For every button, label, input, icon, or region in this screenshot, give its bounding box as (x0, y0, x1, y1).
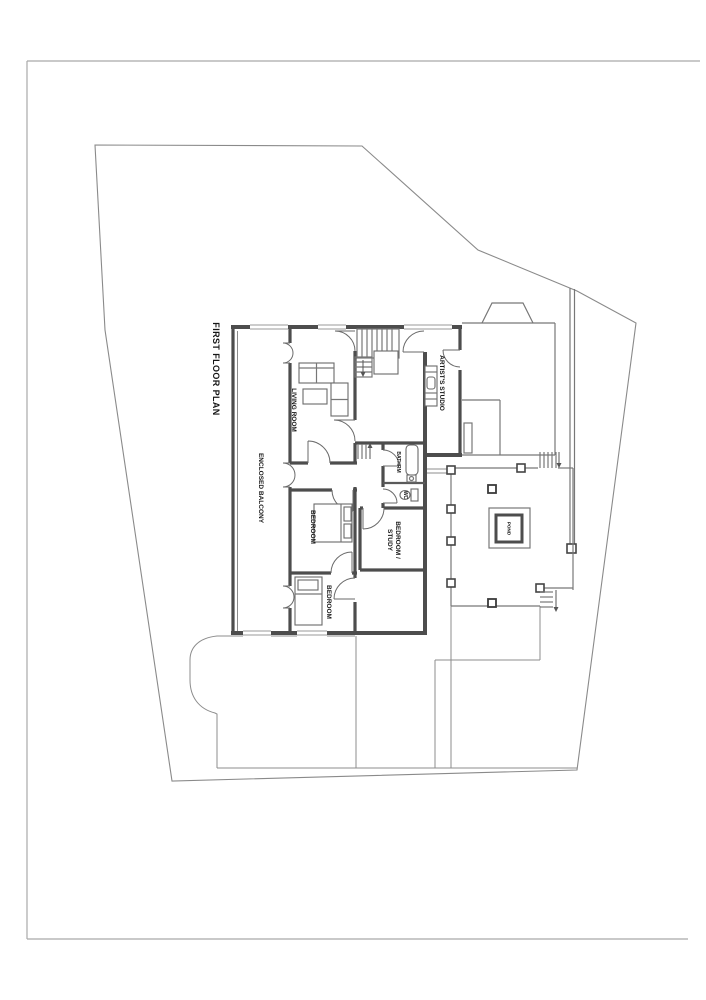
living-room-furniture (299, 363, 348, 416)
staircase (355, 329, 399, 377)
bedroom2-furniture (295, 577, 322, 625)
terrace-pier (517, 464, 525, 472)
driveway-curve (190, 636, 355, 768)
door-leaf (283, 597, 294, 608)
terrace-light (488, 599, 496, 607)
floor-plan-page: POND (0, 0, 706, 1000)
door-leaf (283, 343, 293, 353)
terrace-pier (447, 537, 455, 545)
terrace-pier (447, 466, 455, 474)
wc-label: WC (402, 491, 408, 500)
coffee-table (303, 389, 327, 404)
bedroom2-label: BEDROOM (325, 585, 332, 619)
steps-arrowhead (554, 607, 559, 612)
bathroom-fixtures (406, 445, 418, 482)
living-room-label: LIVING ROOM (290, 388, 297, 432)
terrace-steps-bottom (540, 590, 559, 612)
bathtub (406, 445, 418, 475)
door-bedroom2 (334, 578, 355, 599)
stair-landing (374, 351, 398, 374)
pillow (344, 524, 351, 538)
door-leaf (283, 463, 295, 475)
enclosed-balcony-label: ENCLOSED BALCONY (257, 453, 264, 524)
door-living-top (335, 331, 355, 351)
steps-arrowhead (557, 463, 562, 468)
bedroom-study-label-line1: BEDROOM / (394, 521, 401, 559)
hall-steps (358, 443, 373, 459)
artists-studio-label: ARTIST'S STUDIO (438, 355, 445, 411)
door-leaf (283, 586, 294, 597)
fence-pier (567, 544, 576, 553)
door-leaf (283, 475, 295, 487)
door-living-bottom (308, 441, 330, 463)
bay-window (482, 303, 533, 323)
pillow (344, 507, 351, 521)
page-border (27, 61, 700, 939)
door-studio (403, 331, 424, 352)
window-gap (243, 628, 271, 638)
stair-arrowhead (361, 372, 366, 377)
french-door-corridor (283, 463, 295, 487)
pillow (298, 580, 318, 590)
bedroom1-label: BEDROOM (309, 510, 316, 544)
kitchenette-sink (427, 377, 435, 389)
garden-fence (567, 288, 576, 553)
door-wc (383, 489, 397, 503)
terrace: POND (447, 452, 573, 612)
door-hall (334, 420, 355, 441)
bathroom-label: BATHRM (395, 451, 401, 472)
terrace-light (488, 485, 496, 493)
outbuilding-closet (464, 423, 472, 453)
bedroom1-furniture (314, 504, 352, 542)
door-study (363, 508, 384, 529)
site-boundary (95, 145, 636, 781)
window-gap (404, 322, 452, 332)
pond-label: POND (507, 522, 512, 536)
french-door-bedroom2 (283, 586, 294, 608)
outbuilding (462, 303, 555, 455)
studio-kitchenette (425, 366, 437, 406)
toilet-cistern (411, 489, 418, 501)
bedroom-study-label-line2: STUDY (386, 529, 393, 552)
floor-plan-drawing: POND (0, 0, 706, 1000)
door-leaf (283, 353, 293, 363)
plan-title: FIRST FLOOR PLAN (211, 322, 221, 415)
french-door-living (283, 343, 293, 363)
window-gap (250, 322, 288, 332)
terrace-pier (447, 505, 455, 513)
terrace-pier (447, 579, 455, 587)
door-bedroom-sep (331, 552, 352, 573)
window-gap (297, 628, 327, 638)
terrace-pier (536, 584, 544, 592)
pond: POND (489, 508, 530, 548)
site-boundary-polygon (95, 145, 636, 781)
